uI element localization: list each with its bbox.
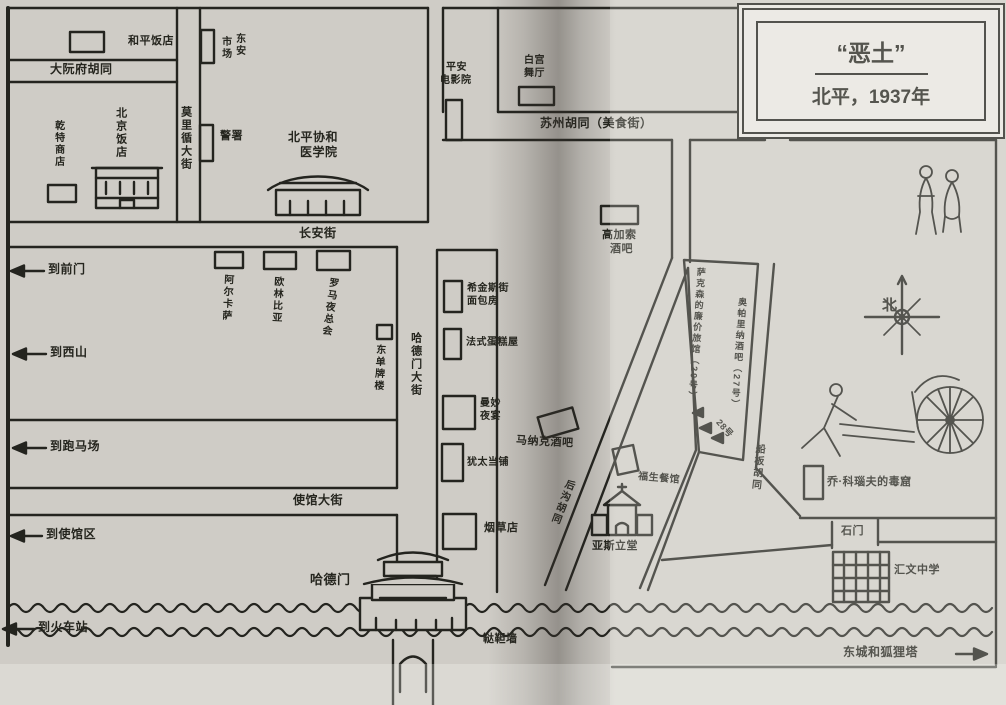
building-knauf-den (804, 466, 823, 499)
label-qiante-store: 乾特商店 (52, 120, 63, 180)
street-lines-left (8, 8, 428, 592)
label-french-cakeshop: 法式蛋糕屋 (466, 338, 519, 349)
label-tobacco-shop: 烟草店 (484, 523, 519, 535)
tartar-wall-lines (8, 604, 992, 636)
label-bakery-1: 希金斯街 (467, 284, 509, 295)
street-label-morrison: 莫里循大街 (179, 106, 191, 192)
label-compass-north: 北 (882, 298, 898, 314)
label-huiwen-school: 汇文中学 (894, 565, 940, 577)
label-manmiao-2: 夜宴 (480, 412, 501, 423)
building-alcazar (215, 252, 243, 268)
building-rects (48, 30, 823, 549)
building-caucasus-bar (601, 206, 638, 224)
map-title-box: “恶土” 北平，1937年 (742, 8, 1000, 134)
beijing-hotel-icon (92, 168, 162, 208)
label-police-station: 警署 (220, 131, 243, 143)
label-alcazar: 阿尔卡萨 (219, 274, 233, 330)
map-title-inner: “恶土” 北平，1937年 (756, 21, 986, 121)
label-white-palace-2: 舞厅 (524, 69, 545, 80)
badlands-map-page: “恶土” 北平，1937年 大阮府胡同 莫里循大街 长安街 哈德门大街 苏州胡同… (0, 0, 1006, 705)
label-beijing-hotel: 北京饭店 (114, 107, 126, 165)
hademen-gate-icon (360, 553, 466, 631)
direction-xishan: 到西山 (50, 346, 88, 359)
building-managke-bar (538, 407, 579, 438)
street-label-shimen: 石门 (841, 526, 864, 538)
label-pingan-cinema-2: 电影院 (440, 76, 472, 87)
label-pumc-1: 北平协和 (288, 131, 338, 144)
label-pingan-cinema-1: 平安 (446, 63, 467, 74)
building-white-palace (519, 87, 554, 105)
label-knauf-den: 乔·科瑙夫的毒窟 (827, 477, 912, 489)
label-olympia: 欧林比亚 (269, 276, 283, 332)
label-caucasus-bar-2: 酒吧 (610, 244, 633, 256)
map-subtitle: 北平，1937年 (812, 82, 930, 109)
street-label-tartar-wall: 鞑靼墙 (483, 634, 518, 646)
label-jewish-pawnshop: 犹太当铺 (467, 458, 509, 469)
label-asbury-church: 亚斯立堂 (592, 541, 638, 553)
label-caucasus-bar-1: 高加索 (602, 230, 637, 242)
rickshaw-illustration (802, 376, 983, 456)
building-dongdan-pailou (377, 325, 392, 339)
building-roma-club (317, 251, 350, 270)
building-dongan-market (201, 30, 214, 63)
label-white-palace-1: 白宫 (524, 56, 545, 67)
street-label-daruanfu: 大阮府胡同 (50, 63, 113, 76)
building-pawnshop (442, 444, 463, 481)
asbury-church-icon (592, 484, 652, 535)
couple-illustration (916, 166, 961, 234)
building-olympia (264, 252, 296, 269)
label-hademen-gate: 哈德门 (310, 573, 351, 587)
direction-foxtower: 东城和狐狸塔 (843, 646, 918, 659)
street-label-legation-street: 使馆大街 (293, 494, 343, 507)
huiwen-school-icon (833, 552, 889, 602)
building-heping-hotel (70, 32, 104, 52)
building-tobacco-shop (443, 514, 476, 549)
label-manmiao-1: 曼妙 (480, 399, 501, 410)
direction-qianmen: 到前门 (48, 263, 86, 276)
street-label-suzhou-hutong: 苏州胡同（美食街） (540, 117, 653, 130)
building-french-cakeshop (444, 329, 461, 359)
building-bakery (444, 281, 462, 312)
building-qiante-store (48, 185, 76, 202)
direction-paomachang: 到跑马场 (50, 440, 100, 453)
map-title: “恶土” (815, 34, 928, 75)
direction-huochezhan: 到火车站 (38, 621, 88, 634)
label-pumc-2: 医学院 (300, 146, 338, 159)
direction-shiguanqu: 到使馆区 (46, 528, 96, 541)
label-dongan-market-2: 市场 (219, 36, 230, 66)
compass-icon (865, 276, 939, 354)
label-heping-hotel: 和平饭店 (128, 36, 174, 48)
street-label-changan: 长安街 (299, 227, 337, 240)
street-label-hademen-street: 哈德门大街 (409, 332, 421, 418)
building-manmiao (443, 396, 475, 429)
label-bakery-2: 面包房 (467, 297, 499, 308)
building-police-station (200, 125, 213, 161)
pumc-building-icon (268, 177, 368, 216)
building-pingan-cinema (446, 100, 462, 140)
label-dongan-market-1: 东安 (233, 33, 244, 63)
gate-opening-icon (393, 640, 433, 705)
